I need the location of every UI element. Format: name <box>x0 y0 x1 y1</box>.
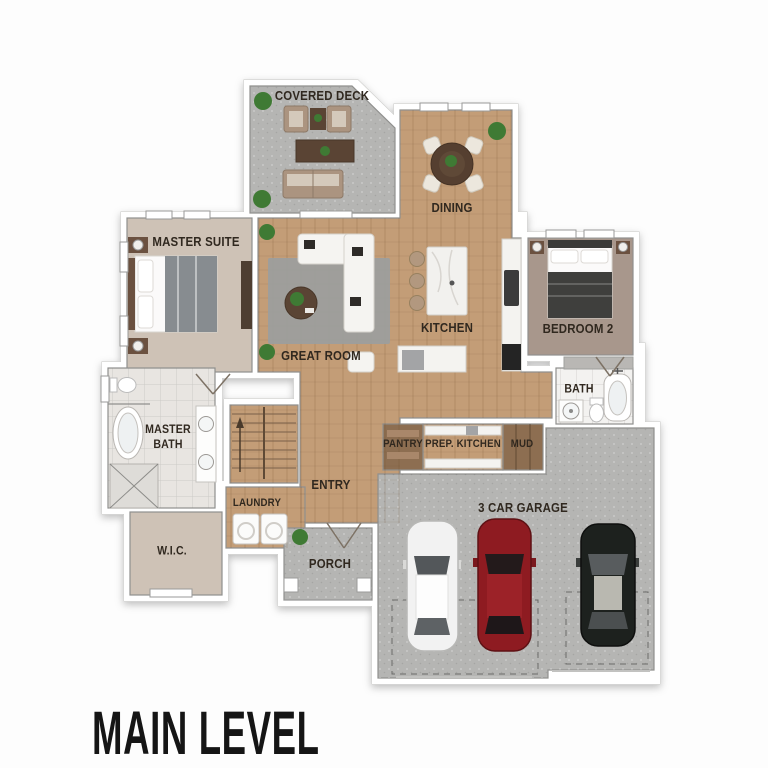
master-dresser <box>241 261 252 329</box>
toilet-icon <box>590 404 604 422</box>
floorplan-svg <box>0 0 768 768</box>
car-rear-window <box>588 612 628 629</box>
coffee-table-plant <box>290 292 304 306</box>
prep-counter <box>425 426 501 435</box>
throw-pillow <box>304 240 315 249</box>
car-rear-window <box>414 618 450 635</box>
room-label-mud: MUD <box>511 438 534 452</box>
sink-drain <box>569 409 573 413</box>
deck-armchair-cushion <box>289 111 303 127</box>
room-label-wic: W.I.C. <box>157 544 187 559</box>
bar-stool <box>410 274 425 289</box>
bathtub-basin <box>609 381 627 415</box>
bedroom2-headboard <box>548 240 612 248</box>
range-icon <box>504 270 519 306</box>
car-windshield <box>588 554 628 575</box>
lamp-icon <box>619 243 628 252</box>
room-label-entry: ENTRY <box>311 477 350 493</box>
car-red <box>473 519 536 651</box>
pillow <box>581 250 608 263</box>
room-label-master-bath: MASTER BATH <box>140 422 196 452</box>
master-bed-blanket <box>165 256 217 332</box>
pillow <box>138 296 153 328</box>
kitchen-island <box>427 247 467 315</box>
room-label-covered-deck: COVERED DECK <box>275 88 369 104</box>
fridge-icon <box>502 344 521 370</box>
prep-counter <box>425 459 501 468</box>
bedroom2-blanket <box>548 272 612 318</box>
deck-plant <box>254 92 272 110</box>
coffee-table-book <box>305 308 314 313</box>
car-rear-window <box>485 616 524 634</box>
dining-table-plant <box>445 155 457 167</box>
deck-table-plant <box>314 114 322 122</box>
car-roof <box>416 575 448 619</box>
lamp-icon <box>533 243 542 252</box>
deck-coffee-table-plant <box>320 146 330 156</box>
room-label-garage: 3 CAR GARAGE <box>478 500 568 516</box>
great-room-plant <box>259 344 275 360</box>
porch-plant <box>292 529 308 545</box>
room-label-bath: BATH <box>564 382 593 397</box>
bar-stool <box>410 296 425 311</box>
car-roof <box>487 574 522 618</box>
sink-icon <box>199 455 214 470</box>
porch-post <box>284 578 298 592</box>
kitchen-appliance <box>402 350 424 370</box>
great-room-plant <box>259 224 275 240</box>
car-sunroof <box>594 576 622 610</box>
floorplan-canvas: COVERED DECK DINING MASTER SUITE GREAT R… <box>0 0 768 768</box>
pantry-shelf <box>387 430 419 437</box>
tub-basin <box>118 413 138 453</box>
car-white <box>403 521 461 651</box>
room-label-dining: DINING <box>431 200 472 216</box>
deck-armchair-cushion <box>332 111 346 127</box>
plan-title: MAIN LEVEL <box>92 698 320 768</box>
room-label-kitchen: KITCHEN <box>421 320 473 336</box>
car-windshield <box>485 554 524 576</box>
pillow <box>138 260 153 292</box>
room-label-prep-kitchen: PREP. KITCHEN <box>425 438 501 452</box>
lamp-icon <box>133 341 143 351</box>
room-label-great-room: GREAT ROOM <box>281 348 361 364</box>
dining-plant <box>488 122 506 140</box>
car-windshield <box>414 556 450 577</box>
room-label-laundry: LAUNDRY <box>233 497 281 511</box>
throw-pillow <box>352 247 363 256</box>
porch-post <box>357 578 371 592</box>
master-bed-headboard <box>128 258 135 330</box>
sink-icon <box>199 417 214 432</box>
kitchen-furniture <box>398 239 521 372</box>
car-black <box>576 524 639 646</box>
prep-sink <box>466 426 478 435</box>
room-label-bedroom-2: BEDROOM 2 <box>543 321 614 337</box>
room-label-porch: PORCH <box>309 556 351 572</box>
room-label-pantry: PANTRY <box>383 438 423 452</box>
island-sink-faucet <box>450 281 455 286</box>
deck-sliding-door <box>300 211 352 218</box>
pantry-shelf <box>387 452 419 459</box>
bar-stool <box>410 252 425 267</box>
toilet-icon <box>118 378 136 393</box>
room-label-master-suite: MASTER SUITE <box>152 234 239 250</box>
lamp-icon <box>133 240 143 250</box>
deck-plant <box>253 190 271 208</box>
pillow <box>551 250 578 263</box>
throw-pillow <box>350 297 361 306</box>
toilet-tank <box>110 378 117 392</box>
